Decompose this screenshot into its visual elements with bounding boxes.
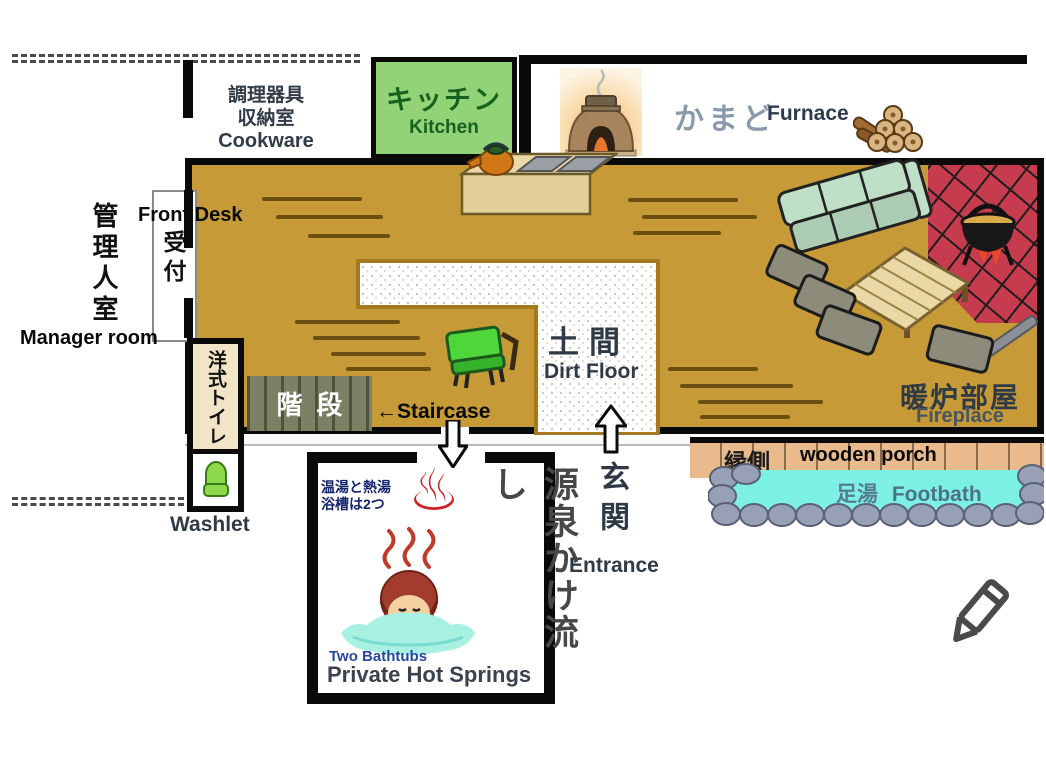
motion-line [668, 367, 758, 371]
footbath-label: 足湯 Footbath [836, 478, 982, 508]
pencil-icon[interactable] [938, 570, 1018, 656]
motion-line [313, 336, 420, 340]
fireplace-room-en-label: Fireplace [916, 405, 1004, 428]
toilet-jp-label: 洋式トイレ [202, 350, 229, 452]
reception-jp-label: 受付 [156, 230, 190, 320]
motion-line [642, 215, 757, 219]
motion-line [276, 215, 383, 219]
cookware-storage-label: 調理器具 収納室 Cookware [196, 84, 336, 153]
toilet-room: 洋式トイレ [187, 338, 244, 512]
cookware-jp1: 調理器具 [196, 84, 336, 107]
entrance-arrow-icon [595, 404, 627, 454]
motion-line [700, 415, 790, 419]
motion-line [262, 197, 362, 201]
bath-note: 温湯と熱湯 浴槽は2つ [321, 479, 391, 513]
entrance-jp-label: 玄関 [589, 461, 633, 561]
floor-plan: 調理器具 収納室 Cookware かまど Furnace [0, 0, 1046, 771]
motion-line [698, 400, 823, 404]
stove-counter-icon [458, 142, 618, 220]
dirt-floor-jp-label: 土間 [548, 317, 630, 362]
footbath-jp-label: 足湯 [836, 483, 878, 506]
bathing-person-icon [333, 525, 483, 655]
bath-note-line2: 浴槽は2つ [321, 496, 391, 513]
kitchen-en-label: Kitchen [409, 117, 479, 139]
front-desk-label: Front Desk [138, 204, 242, 227]
motion-line [308, 234, 390, 238]
kitchen-jp-label: キッチン [386, 78, 502, 117]
staircase: 階段 [247, 376, 372, 431]
motion-line [331, 352, 426, 356]
cookware-en: Cookware [196, 130, 336, 153]
washlet-label: Washlet [170, 513, 250, 537]
manager-room-jp-label: 管理人室 [86, 202, 123, 332]
furnace-en-label: Furnace [767, 102, 849, 126]
firewood-icon [853, 99, 929, 153]
bench-icon [440, 322, 528, 392]
wall-stub-top-left [183, 60, 193, 118]
hot-springs-jp-label: 源泉かけ流し [482, 466, 584, 681]
cookware-jp2: 収納室 [196, 107, 336, 130]
manager-room-en-label: Manager room [20, 327, 158, 350]
private-hot-springs-label: Private Hot Springs [327, 662, 531, 688]
motion-line [633, 231, 721, 235]
dirt-floor-en-label: Dirt Floor [544, 360, 639, 384]
bath-note-line1: 温湯と熱湯 [321, 479, 391, 496]
toilet-icon [201, 460, 231, 500]
staircase-en-label: ←Staircase [376, 400, 490, 424]
motion-line [628, 198, 738, 202]
washlet-stall [193, 449, 238, 506]
staircase-jp-label: 階段 [276, 385, 356, 422]
footbath-en-label: Footbath [892, 483, 982, 506]
wall-top-right [521, 55, 1027, 64]
furnace-jp-label: かまど [674, 94, 776, 138]
motion-line [346, 367, 431, 371]
wall-bottom-right-segment [658, 427, 1044, 434]
motion-line [295, 320, 400, 324]
onsen-symbol-icon: ♨ [408, 462, 460, 520]
motion-line [680, 384, 793, 388]
dashed-boundary-left [12, 497, 184, 506]
